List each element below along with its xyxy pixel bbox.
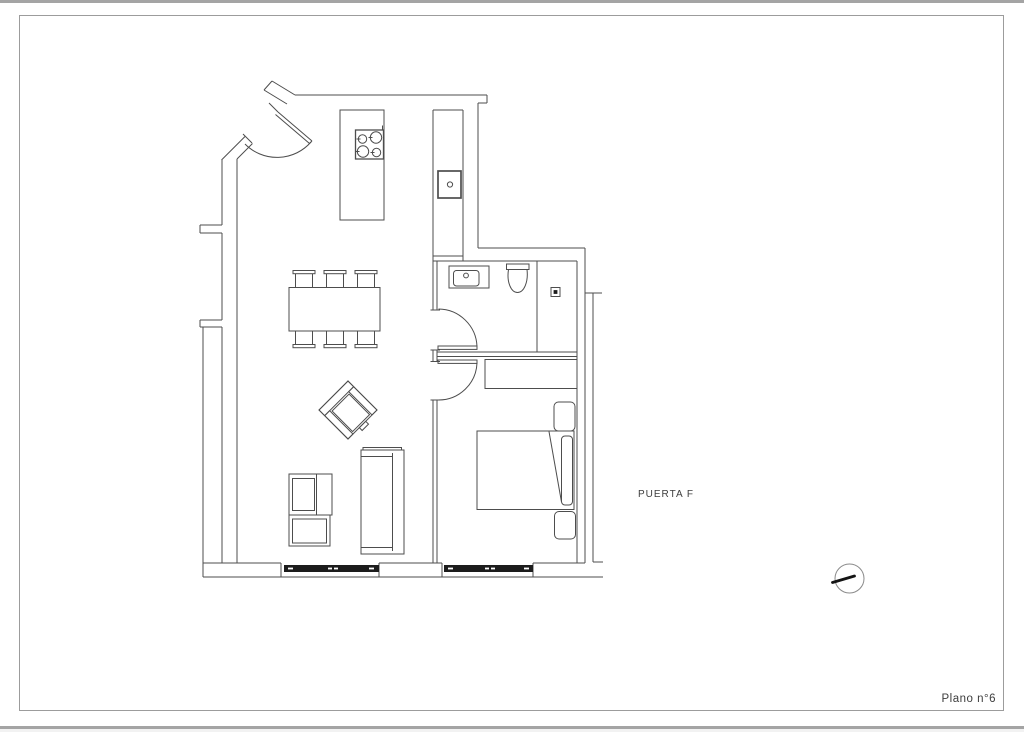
closet [485, 360, 577, 389]
floor-plan-drawing [0, 0, 1024, 732]
bed [477, 431, 574, 510]
door-swing-arc [439, 363, 478, 400]
armchair [319, 381, 380, 442]
dining-table [289, 288, 380, 332]
walls [200, 95, 603, 577]
window [444, 565, 533, 572]
kitchen-island [340, 110, 384, 220]
viewer-margin [0, 729, 1024, 732]
chair [355, 271, 377, 288]
door-leaf [438, 360, 477, 363]
tv-unit [289, 474, 332, 515]
pillow [562, 436, 573, 505]
entrance-door [222, 81, 313, 160]
door-jamb [243, 103, 278, 143]
chair [355, 331, 377, 348]
chair [324, 331, 346, 348]
orientation-marker-icon [833, 564, 865, 593]
door-leaf [276, 112, 313, 144]
door-swing-arc [439, 309, 478, 347]
shelf-unit [289, 515, 330, 546]
door-label: PUERTA F [638, 489, 694, 500]
dining-table-and-chairs [289, 271, 380, 348]
bathroom-sink-icon [449, 266, 489, 288]
chair [293, 331, 315, 348]
door-swing-arc [245, 142, 311, 157]
toilet-icon [507, 264, 530, 293]
sofa [361, 448, 404, 555]
nightstand [555, 512, 576, 540]
kitchen-sink-icon [438, 171, 461, 198]
cooktop-icon [356, 126, 384, 160]
chair [324, 271, 346, 288]
window [284, 565, 379, 572]
viewer-canvas: { "sheet": { "label_door": "PUERTA F", "… [0, 0, 1024, 732]
bedroom-door [438, 360, 477, 400]
sheet-number-label: Plano n°6 [942, 693, 997, 705]
bathroom-door [438, 309, 477, 349]
nightstand [554, 402, 575, 431]
sheet-fold-line [549, 432, 562, 503]
chair [293, 271, 315, 288]
shower-area [537, 261, 560, 352]
shower-drain-icon [551, 288, 560, 297]
door-leaf [438, 346, 477, 349]
